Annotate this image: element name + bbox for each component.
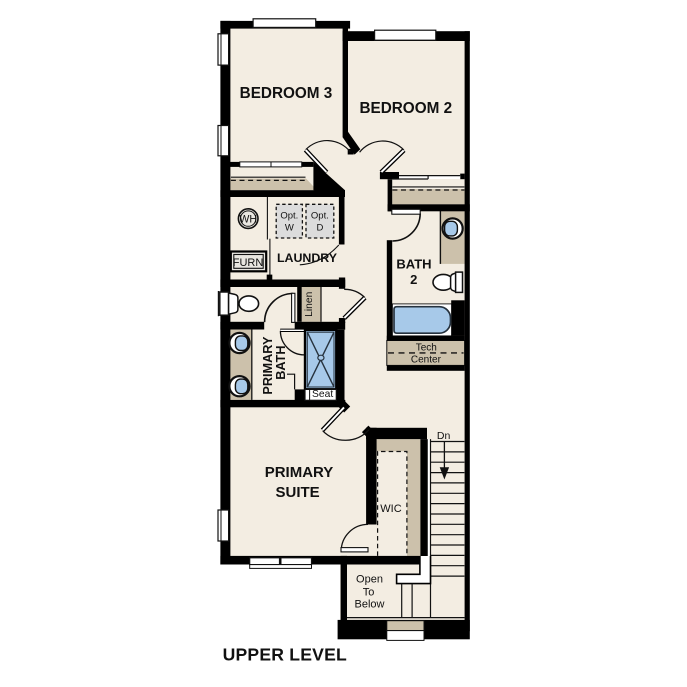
svg-text:Tech: Tech	[416, 342, 437, 353]
svg-text:Below: Below	[355, 599, 385, 611]
svg-text:BEDROOM 2: BEDROOM 2	[359, 100, 452, 117]
svg-text:2: 2	[410, 272, 417, 287]
svg-text:Open: Open	[356, 574, 383, 586]
svg-text:BATH: BATH	[274, 345, 288, 379]
svg-text:WH: WH	[239, 213, 257, 225]
svg-text:W: W	[285, 222, 294, 233]
svg-text:Seat: Seat	[312, 389, 333, 400]
svg-text:WIC: WIC	[380, 503, 401, 515]
svg-text:FURN: FURN	[233, 257, 264, 269]
svg-text:To: To	[363, 587, 375, 599]
svg-text:Opt.: Opt.	[311, 210, 329, 221]
svg-text:BATH: BATH	[396, 257, 431, 272]
svg-text:PRIMARY: PRIMARY	[261, 336, 275, 395]
svg-text:Linen: Linen	[304, 291, 315, 316]
svg-text:PRIMARY: PRIMARY	[265, 464, 334, 481]
svg-text:LAUNDRY: LAUNDRY	[277, 251, 338, 265]
svg-text:Opt.: Opt.	[280, 210, 298, 221]
svg-text:UPPER LEVEL: UPPER LEVEL	[223, 644, 347, 664]
svg-text:Center: Center	[411, 355, 442, 366]
svg-text:SUITE: SUITE	[276, 484, 320, 501]
svg-text:D: D	[316, 222, 323, 233]
svg-text:BEDROOM 3: BEDROOM 3	[240, 85, 333, 102]
svg-text:Dn: Dn	[437, 430, 451, 442]
